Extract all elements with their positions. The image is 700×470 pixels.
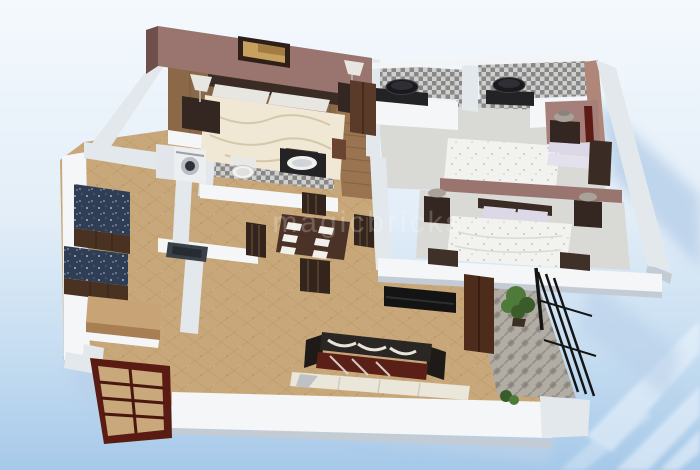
dressing-stool — [332, 138, 346, 160]
watermark-text: magicbricks — [272, 206, 463, 239]
wall-front-right-corner — [540, 396, 590, 438]
bed-foot-stool-left — [428, 248, 458, 267]
floorplan-svg: magicbricks — [0, 0, 700, 470]
vanity-basin-inner — [292, 159, 312, 167]
dining-chair-left — [246, 222, 266, 258]
floorplan-render: magicbricks — [0, 0, 700, 470]
bed-foot-stool-right — [560, 252, 590, 271]
appliance-box — [156, 144, 174, 180]
wall-between-bathrooms — [462, 64, 478, 112]
bedroom-middle-nightstand — [550, 120, 580, 144]
bedroom-middle-headboard — [588, 140, 612, 186]
toilet-seat — [236, 168, 250, 176]
bathroom-1-basin-rim — [391, 81, 413, 90]
bedroom-lower-nightstand-right — [574, 200, 602, 228]
bedroom-lower-bed — [446, 216, 572, 268]
bedroom-lower-lamp-right — [579, 193, 597, 202]
bathroom-2-basin-rim — [498, 79, 520, 88]
kitchen-counter-a — [74, 184, 130, 236]
dining-chair-bottom — [300, 258, 330, 294]
washing-machine-door-glass — [185, 161, 195, 171]
bedroom-lower-lamp-left — [428, 189, 446, 198]
master-back-wall-return — [146, 26, 158, 74]
bedroom-middle-lamp-top — [558, 110, 570, 116]
plant-pot — [512, 318, 526, 327]
